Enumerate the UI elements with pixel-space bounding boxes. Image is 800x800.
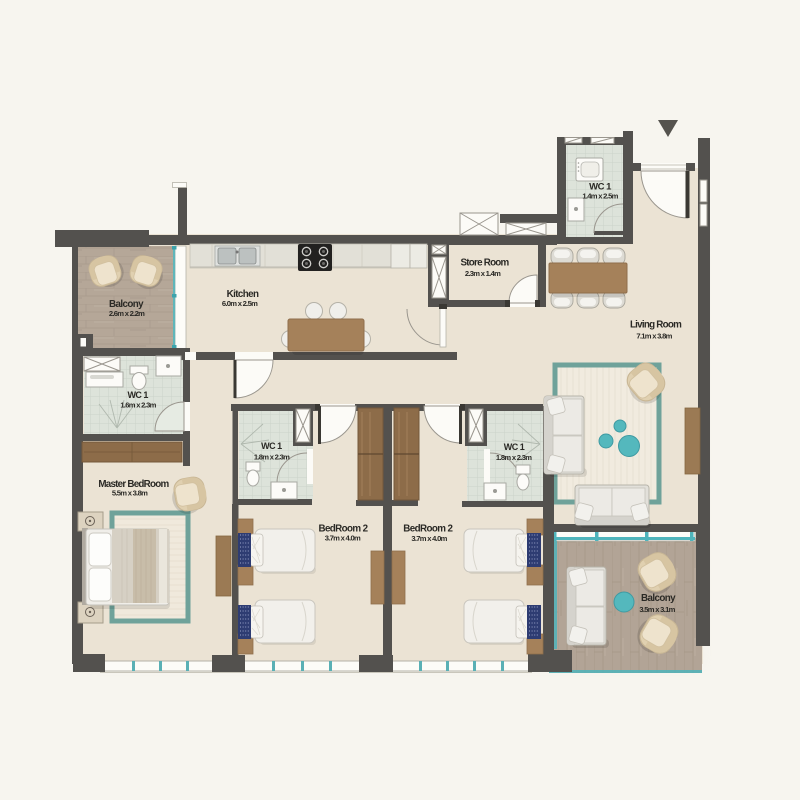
svg-text:1.4m x 2.5m: 1.4m x 2.5m: [582, 192, 618, 201]
svg-text:Living Room: Living Room: [630, 320, 682, 331]
svg-text:WC 1: WC 1: [127, 390, 148, 400]
svg-text:BedRoom 2: BedRoom 2: [403, 524, 453, 535]
svg-text:2.3m x 1.4m: 2.3m x 1.4m: [465, 269, 501, 278]
svg-text:Balcony: Balcony: [641, 593, 676, 604]
svg-text:6.0m x 2.5m: 6.0m x 2.5m: [222, 299, 258, 308]
svg-text:Store Room: Store Room: [460, 258, 509, 269]
svg-text:WC 1: WC 1: [504, 442, 525, 452]
svg-text:2.6m x 2.2m: 2.6m x 2.2m: [109, 309, 145, 318]
svg-text:5.5m x 3.8m: 5.5m x 3.8m: [112, 489, 148, 498]
svg-text:3.7m x 4.0m: 3.7m x 4.0m: [411, 534, 447, 543]
svg-text:7.1m x 3.8m: 7.1m x 3.8m: [636, 332, 672, 341]
svg-text:1.8m x 2.3m: 1.8m x 2.3m: [496, 453, 532, 462]
svg-text:1.8m x 2.3m: 1.8m x 2.3m: [254, 453, 290, 462]
svg-text:WC 1: WC 1: [261, 441, 282, 451]
svg-text:3.5m x 3.1m: 3.5m x 3.1m: [639, 605, 675, 614]
svg-text:1.6m x 2.3m: 1.6m x 2.3m: [120, 401, 156, 410]
svg-text:3.7m x 4.0m: 3.7m x 4.0m: [325, 534, 361, 543]
